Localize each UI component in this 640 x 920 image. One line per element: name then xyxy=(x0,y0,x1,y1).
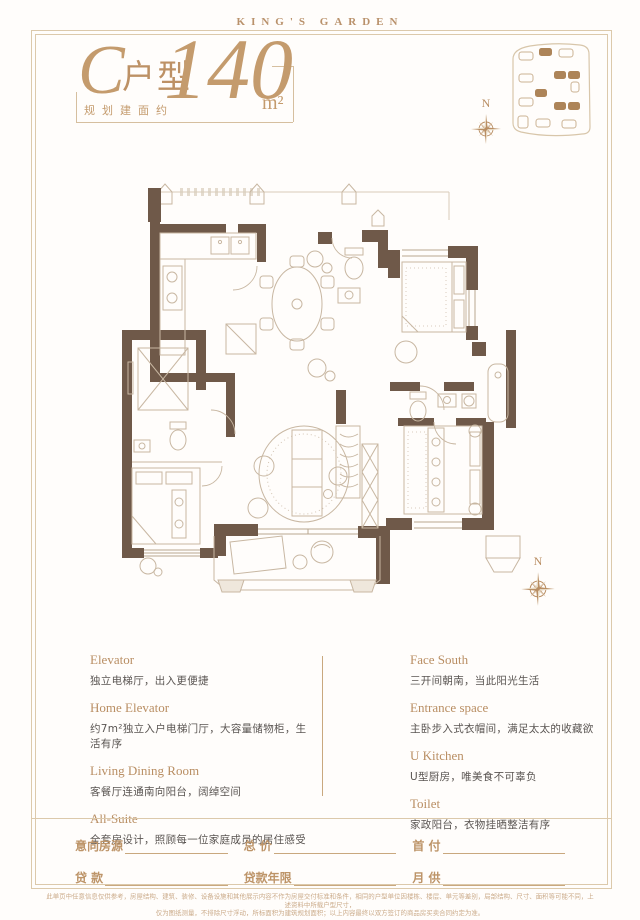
plan-windows xyxy=(144,250,475,556)
form-field-loan-term: 贷款年限 xyxy=(244,869,397,886)
planned-area-label: 规划建面约 xyxy=(84,102,174,118)
feature-desc: 独立电梯厅，出入更便捷 xyxy=(90,673,315,688)
disclaimer-line: 仅为图纸测量，不排除尺寸浮动，所标面积为建筑规划面积；以上内容最终以双方签订的商… xyxy=(44,910,596,918)
feature-title: Face South xyxy=(410,652,605,668)
form-field-loan: 贷 款 xyxy=(75,869,228,886)
compass-bottom: N xyxy=(518,554,558,613)
feature-desc: U型厨房，唯美食不可辜负 xyxy=(410,769,605,784)
form-field-blank xyxy=(443,839,565,854)
feature-title: Toilet xyxy=(410,796,605,812)
feature-item: U Kitchen U型厨房，唯美食不可辜负 xyxy=(410,748,605,784)
disclaimer-line: 此单页中任意信息仅供参考，房屋结构、建筑、装修、设备设施和其他展示内容不作为房屋… xyxy=(44,893,596,910)
feature-desc: 主卧步入式衣帽间，满足太太的收藏欲 xyxy=(410,721,605,736)
bathroom-left-fixtures xyxy=(132,422,222,462)
feature-item: Living Dining Room 客餐厅连通南向阳台，阔绰空间 xyxy=(90,763,315,799)
form-separator-line xyxy=(31,818,611,819)
area-unit: m² xyxy=(262,92,284,115)
brochure-page: KING'S GARDEN C 户型 规划建面约 140 m² N xyxy=(0,0,640,920)
balcony xyxy=(214,536,520,592)
roof-hood-icons xyxy=(158,184,384,226)
feature-item: Elevator 独立电梯厅，出入更便捷 xyxy=(90,652,315,688)
form-field-blank xyxy=(294,871,397,886)
bathroom-top-fixtures xyxy=(338,248,363,303)
compass-north-label: N xyxy=(518,554,558,569)
bedroom-top-right xyxy=(395,262,466,363)
plan-overhang-lines xyxy=(160,192,449,220)
feature-item: Entrance space 主卧步入式衣帽间，满足太太的收藏欲 xyxy=(410,700,605,736)
form-field-monthly-payment: 月 供 xyxy=(412,869,565,886)
form-field-blank xyxy=(443,871,565,886)
form-field-total-price: 总 价 xyxy=(244,837,397,854)
site-location-map-icon xyxy=(506,40,598,140)
form-field-label: 贷款年限 xyxy=(244,869,292,886)
feature-title: Entrance space xyxy=(410,700,605,716)
title-frame-line xyxy=(76,92,77,122)
feature-title: Home Elevator xyxy=(90,700,315,716)
title-frame-line xyxy=(76,122,293,123)
closet-and-cabinet xyxy=(336,426,378,528)
form-field-down-payment: 首 付 xyxy=(412,837,565,854)
compass-top: N xyxy=(468,96,504,151)
feature-title: Elevator xyxy=(90,652,315,668)
compass-rose-icon xyxy=(469,112,503,146)
disclaimer-text: 此单页中任意信息仅供参考，房屋结构、建筑、装修、设备设施和其他展示内容不作为房屋… xyxy=(44,893,596,918)
form-field-label: 月 供 xyxy=(412,869,440,886)
master-bedroom xyxy=(404,425,482,515)
plan-walls xyxy=(122,188,516,584)
form-field-blank xyxy=(274,839,396,854)
compass-north-label: N xyxy=(468,96,504,111)
form-field-label: 总 价 xyxy=(244,837,272,854)
living-room xyxy=(248,426,349,522)
features-column-right: Face South 三开间朝南，当此阳光生活 Entrance space 主… xyxy=(410,652,605,844)
form-field-label: 贷 款 xyxy=(75,869,103,886)
form-field-blank xyxy=(105,871,227,886)
inquiry-form: 意向房源 总 价 首 付 贷 款 贷款年限 月 供 xyxy=(75,822,565,886)
feature-title: U Kitchen xyxy=(410,748,605,764)
feature-desc: 客餐厅连通南向阳台，阔绰空间 xyxy=(90,784,315,799)
form-field-intended-unit: 意向房源 xyxy=(75,837,228,854)
unit-title-block: C 户型 规划建面约 140 m² xyxy=(76,44,306,128)
form-field-blank xyxy=(125,839,228,854)
brand-header: KING'S GARDEN xyxy=(0,16,640,28)
form-row: 意向房源 总 价 首 付 xyxy=(75,830,565,854)
form-field-label: 首 付 xyxy=(412,837,440,854)
feature-item: Home Elevator 约7m²独立入户电梯门厅，大容量储物柜，生活有序 xyxy=(90,700,315,751)
bedroom-bottom-left xyxy=(132,468,200,544)
feature-title: Living Dining Room xyxy=(90,763,315,779)
form-field-label: 意向房源 xyxy=(75,837,123,854)
feature-desc: 约7m²独立入户电梯门厅，大容量储物柜，生活有序 xyxy=(90,721,315,751)
form-row: 贷 款 贷款年限 月 供 xyxy=(75,862,565,886)
features-section: Elevator 独立电梯厅，出入更便捷 Home Elevator 约7m²独… xyxy=(0,652,640,810)
door-arcs xyxy=(202,238,456,486)
features-divider xyxy=(322,656,323,796)
title-frame-line xyxy=(293,66,294,122)
floor-plan-drawing xyxy=(114,176,526,636)
feature-desc: 三开间朝南，当此阳光生活 xyxy=(410,673,605,688)
feature-item: Face South 三开间朝南，当此阳光生活 xyxy=(410,652,605,688)
compass-rose-icon xyxy=(519,570,557,608)
bathroom-right-fixtures xyxy=(410,364,508,422)
unit-type-letter: C xyxy=(78,36,125,106)
